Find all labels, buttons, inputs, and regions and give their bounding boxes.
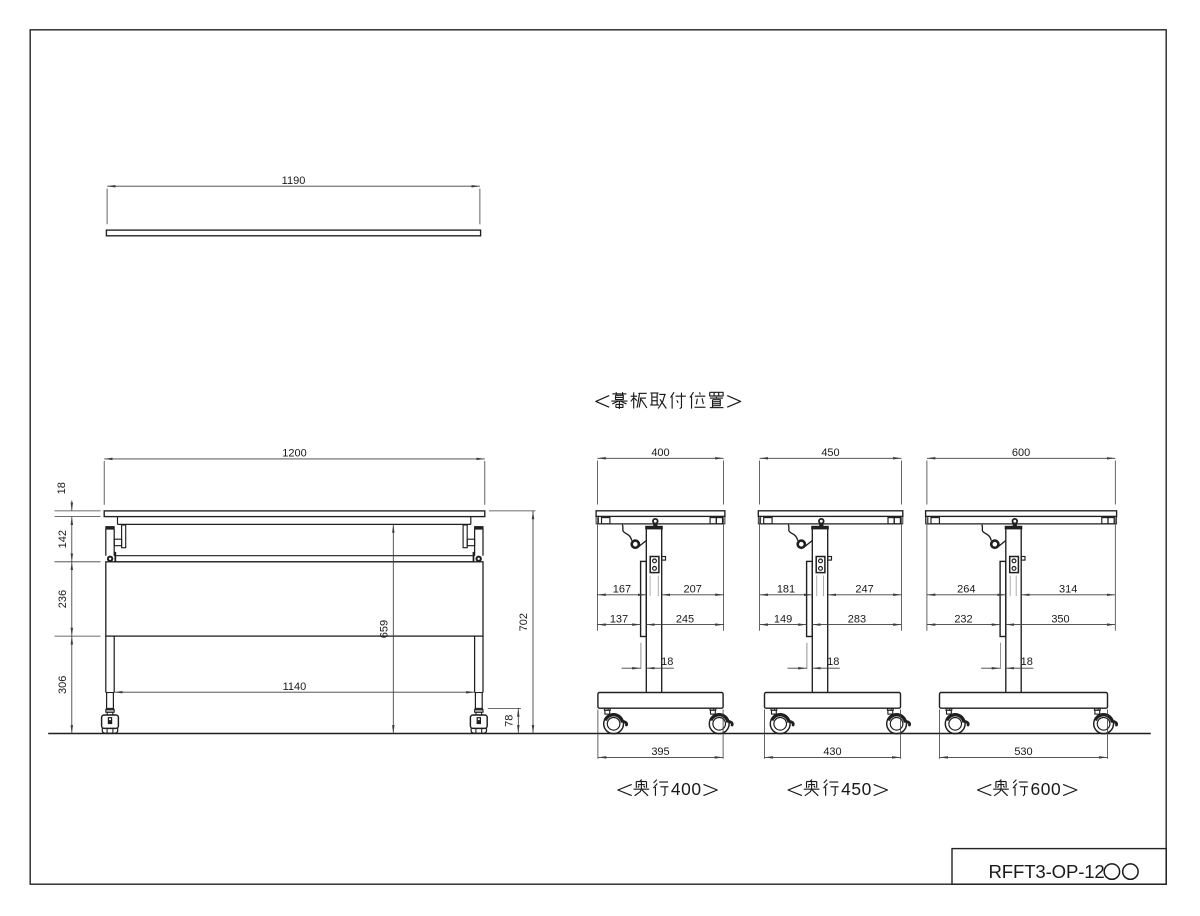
svg-text:400: 400 (651, 447, 669, 459)
svg-text:247: 247 (855, 584, 873, 596)
svg-text:306: 306 (57, 676, 69, 694)
svg-text:600: 600 (1012, 447, 1030, 459)
svg-text:207: 207 (684, 584, 702, 596)
svg-text:530: 530 (1014, 746, 1032, 758)
svg-text:283: 283 (848, 613, 866, 625)
svg-text:232: 232 (954, 613, 972, 625)
svg-text:1140: 1140 (283, 681, 307, 693)
svg-text:450: 450 (821, 447, 839, 459)
svg-text:600: 600 (1030, 779, 1061, 799)
svg-text:181: 181 (777, 584, 795, 596)
svg-text:18: 18 (661, 656, 673, 668)
svg-text:659: 659 (378, 620, 390, 638)
svg-text:450: 450 (841, 779, 872, 799)
svg-text:395: 395 (651, 746, 669, 758)
svg-text:314: 314 (1059, 584, 1077, 596)
svg-text:18: 18 (56, 482, 68, 494)
svg-text:RFFT3-OP-12: RFFT3-OP-12 (989, 861, 1105, 882)
svg-text:149: 149 (774, 613, 792, 625)
svg-text:78: 78 (503, 715, 515, 727)
svg-text:1190: 1190 (282, 175, 306, 187)
svg-text:18: 18 (827, 656, 839, 668)
svg-text:264: 264 (957, 584, 975, 596)
svg-text:350: 350 (1051, 613, 1069, 625)
svg-text:137: 137 (610, 613, 628, 625)
svg-text:236: 236 (57, 590, 69, 608)
svg-text:18: 18 (1021, 656, 1033, 668)
svg-text:702: 702 (518, 613, 530, 631)
svg-text:1200: 1200 (282, 448, 306, 460)
svg-text:142: 142 (57, 530, 69, 548)
svg-text:167: 167 (613, 584, 631, 596)
svg-text:245: 245 (676, 613, 694, 625)
svg-text:400: 400 (671, 779, 702, 799)
svg-text:430: 430 (823, 746, 841, 758)
